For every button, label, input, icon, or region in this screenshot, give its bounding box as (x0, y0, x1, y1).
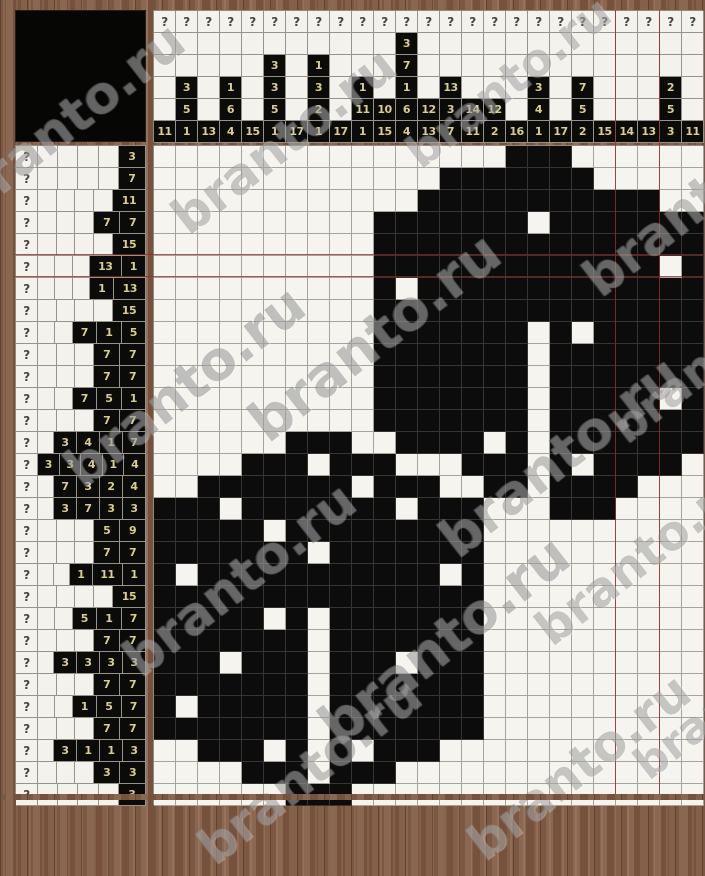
grid-cell[interactable] (638, 674, 660, 696)
grid-cell[interactable] (506, 718, 528, 740)
grid-cell[interactable] (330, 674, 352, 696)
grid-cell[interactable] (264, 586, 286, 608)
grid-cell[interactable] (462, 168, 484, 190)
grid-cell[interactable] (308, 300, 330, 322)
grid-cell[interactable] (352, 300, 374, 322)
grid-cell[interactable] (638, 630, 660, 652)
grid-cell[interactable] (220, 652, 242, 674)
grid-cell[interactable] (594, 146, 616, 168)
grid-cell[interactable] (440, 212, 462, 234)
grid-cell[interactable] (506, 520, 528, 542)
grid-cell[interactable] (462, 674, 484, 696)
grid-cell[interactable] (572, 476, 594, 498)
grid-cell[interactable] (418, 696, 440, 718)
grid-cell[interactable] (440, 256, 462, 278)
grid-cell[interactable] (308, 146, 330, 168)
grid-cell[interactable] (682, 454, 704, 476)
grid-cell[interactable] (572, 630, 594, 652)
grid-cell[interactable] (286, 652, 308, 674)
grid-cell[interactable] (528, 630, 550, 652)
grid-cell[interactable] (484, 278, 506, 300)
grid-cell[interactable] (682, 674, 704, 696)
grid-cell[interactable] (220, 366, 242, 388)
grid-cell[interactable] (220, 454, 242, 476)
grid-cell[interactable] (484, 718, 506, 740)
grid-cell[interactable] (220, 762, 242, 784)
grid-cell[interactable] (660, 168, 682, 190)
grid-cell[interactable] (616, 520, 638, 542)
grid-cell[interactable] (550, 696, 572, 718)
grid-cell[interactable] (176, 344, 198, 366)
grid-cell[interactable] (242, 520, 264, 542)
grid-cell[interactable] (550, 212, 572, 234)
grid-cell[interactable] (660, 718, 682, 740)
grid-cell[interactable] (330, 190, 352, 212)
grid-cell[interactable] (638, 190, 660, 212)
grid-cell[interactable] (330, 234, 352, 256)
grid-cell[interactable] (374, 564, 396, 586)
grid-cell[interactable] (330, 146, 352, 168)
grid-cell[interactable] (374, 762, 396, 784)
grid-cell[interactable] (506, 366, 528, 388)
grid-cell[interactable] (154, 278, 176, 300)
grid-cell[interactable] (484, 454, 506, 476)
grid-cell[interactable] (594, 212, 616, 234)
grid-cell[interactable] (264, 476, 286, 498)
grid-cell[interactable] (220, 234, 242, 256)
grid-cell[interactable] (264, 190, 286, 212)
grid-cell[interactable] (396, 454, 418, 476)
grid-cell[interactable] (374, 696, 396, 718)
grid-cell[interactable] (198, 564, 220, 586)
grid-cell[interactable] (462, 278, 484, 300)
grid-cell[interactable] (374, 234, 396, 256)
grid-cell[interactable] (374, 476, 396, 498)
grid-cell[interactable] (176, 322, 198, 344)
grid-cell[interactable] (264, 564, 286, 586)
grid-cell[interactable] (462, 498, 484, 520)
grid-cell[interactable] (154, 630, 176, 652)
grid-cell[interactable] (484, 168, 506, 190)
grid-cell[interactable] (418, 366, 440, 388)
grid-cell[interactable] (660, 542, 682, 564)
grid-cell[interactable] (176, 234, 198, 256)
grid-cell[interactable] (594, 454, 616, 476)
grid-cell[interactable] (484, 190, 506, 212)
grid-cell[interactable] (220, 344, 242, 366)
grid-cell[interactable] (440, 410, 462, 432)
grid-cell[interactable] (154, 608, 176, 630)
grid-cell[interactable] (660, 498, 682, 520)
grid-cell[interactable] (198, 674, 220, 696)
grid-cell[interactable] (330, 256, 352, 278)
grid-cell[interactable] (550, 300, 572, 322)
grid-cell[interactable] (660, 278, 682, 300)
grid-cell[interactable] (660, 696, 682, 718)
grid-cell[interactable] (374, 740, 396, 762)
grid-cell[interactable] (462, 454, 484, 476)
grid-cell[interactable] (242, 564, 264, 586)
grid-cell[interactable] (682, 256, 704, 278)
grid-cell[interactable] (594, 542, 616, 564)
grid-cell[interactable] (154, 762, 176, 784)
grid-cell[interactable] (264, 674, 286, 696)
grid-cell[interactable] (242, 388, 264, 410)
grid-cell[interactable] (176, 542, 198, 564)
grid-cell[interactable] (396, 322, 418, 344)
grid-cell[interactable] (638, 432, 660, 454)
grid-cell[interactable] (352, 630, 374, 652)
grid-cell[interactable] (220, 432, 242, 454)
grid-cell[interactable] (528, 652, 550, 674)
grid-cell[interactable] (572, 674, 594, 696)
grid-cell[interactable] (462, 630, 484, 652)
grid-cell[interactable] (462, 476, 484, 498)
grid-cell[interactable] (616, 476, 638, 498)
grid-cell[interactable] (506, 146, 528, 168)
grid-cell[interactable] (616, 322, 638, 344)
grid-cell[interactable] (264, 696, 286, 718)
grid-cell[interactable] (176, 564, 198, 586)
grid-cell[interactable] (660, 476, 682, 498)
grid-cell[interactable] (220, 212, 242, 234)
grid-cell[interactable] (220, 410, 242, 432)
grid-cell[interactable] (396, 520, 418, 542)
grid-cell[interactable] (242, 300, 264, 322)
grid-cell[interactable] (462, 234, 484, 256)
grid-cell[interactable] (286, 300, 308, 322)
grid-cell[interactable] (506, 190, 528, 212)
grid-cell[interactable] (396, 146, 418, 168)
grid-cell[interactable] (418, 564, 440, 586)
grid-cell[interactable] (660, 366, 682, 388)
grid-cell[interactable] (264, 718, 286, 740)
grid-cell[interactable] (242, 212, 264, 234)
grid-cell[interactable] (682, 366, 704, 388)
grid-cell[interactable] (242, 256, 264, 278)
grid-cell[interactable] (550, 740, 572, 762)
grid-cell[interactable] (440, 564, 462, 586)
grid-cell[interactable] (528, 388, 550, 410)
grid-cell[interactable] (572, 300, 594, 322)
grid-cell[interactable] (572, 256, 594, 278)
grid-cell[interactable] (198, 388, 220, 410)
grid-cell[interactable] (682, 586, 704, 608)
grid-cell[interactable] (682, 322, 704, 344)
grid-cell[interactable] (682, 762, 704, 784)
grid-cell[interactable] (616, 410, 638, 432)
grid-cell[interactable] (330, 608, 352, 630)
grid-cell[interactable] (286, 388, 308, 410)
grid-cell[interactable] (352, 520, 374, 542)
grid-cell[interactable] (374, 278, 396, 300)
grid-cell[interactable] (374, 388, 396, 410)
grid-cell[interactable] (462, 740, 484, 762)
grid-cell[interactable] (528, 586, 550, 608)
grid-cell[interactable] (462, 322, 484, 344)
grid-cell[interactable] (198, 168, 220, 190)
grid-cell[interactable] (616, 608, 638, 630)
grid-cell[interactable] (638, 520, 660, 542)
grid-cell[interactable] (352, 322, 374, 344)
grid-cell[interactable] (396, 476, 418, 498)
grid-cell[interactable] (396, 762, 418, 784)
grid-cell[interactable] (616, 542, 638, 564)
grid-cell[interactable] (506, 256, 528, 278)
grid-cell[interactable] (352, 608, 374, 630)
grid-cell[interactable] (616, 234, 638, 256)
grid-cell[interactable] (594, 630, 616, 652)
grid-cell[interactable] (396, 740, 418, 762)
grid-cell[interactable] (418, 432, 440, 454)
grid-cell[interactable] (330, 762, 352, 784)
grid-cell[interactable] (572, 718, 594, 740)
grid-cell[interactable] (616, 718, 638, 740)
grid-cell[interactable] (572, 498, 594, 520)
grid-cell[interactable] (484, 366, 506, 388)
grid-cell[interactable] (616, 564, 638, 586)
grid-cell[interactable] (440, 652, 462, 674)
grid-cell[interactable] (572, 410, 594, 432)
grid-cell[interactable] (484, 300, 506, 322)
grid-cell[interactable] (528, 300, 550, 322)
grid-cell[interactable] (330, 586, 352, 608)
grid-cell[interactable] (264, 542, 286, 564)
grid-cell[interactable] (682, 542, 704, 564)
grid-cell[interactable] (594, 520, 616, 542)
grid-cell[interactable] (528, 718, 550, 740)
grid-cell[interactable] (308, 762, 330, 784)
grid-cell[interactable] (594, 498, 616, 520)
grid-cell[interactable] (154, 146, 176, 168)
grid-cell[interactable] (352, 652, 374, 674)
grid-cell[interactable] (682, 718, 704, 740)
grid-cell[interactable] (638, 740, 660, 762)
grid-cell[interactable] (484, 212, 506, 234)
grid-cell[interactable] (484, 586, 506, 608)
grid-cell[interactable] (638, 718, 660, 740)
grid-cell[interactable] (594, 674, 616, 696)
grid-cell[interactable] (506, 278, 528, 300)
grid-cell[interactable] (374, 542, 396, 564)
grid-cell[interactable] (286, 410, 308, 432)
grid-cell[interactable] (242, 542, 264, 564)
grid-cell[interactable] (572, 652, 594, 674)
grid-cell[interactable] (660, 212, 682, 234)
grid-cell[interactable] (198, 146, 220, 168)
grid-cell[interactable] (308, 652, 330, 674)
grid-cell[interactable] (528, 454, 550, 476)
grid-cell[interactable] (198, 322, 220, 344)
grid-cell[interactable] (550, 718, 572, 740)
grid-cell[interactable] (506, 674, 528, 696)
grid-cell[interactable] (374, 498, 396, 520)
grid-cell[interactable] (242, 740, 264, 762)
grid-cell[interactable] (506, 542, 528, 564)
grid-cell[interactable] (264, 630, 286, 652)
grid-cell[interactable] (682, 740, 704, 762)
grid-cell[interactable] (572, 168, 594, 190)
grid-cell[interactable] (616, 652, 638, 674)
grid-cell[interactable] (550, 454, 572, 476)
grid-cell[interactable] (660, 388, 682, 410)
grid-cell[interactable] (440, 762, 462, 784)
grid-cell[interactable] (330, 168, 352, 190)
grid-cell[interactable] (308, 344, 330, 366)
grid-cell[interactable] (330, 564, 352, 586)
grid-cell[interactable] (374, 652, 396, 674)
grid-cell[interactable] (308, 410, 330, 432)
grid-cell[interactable] (330, 652, 352, 674)
grid-cell[interactable] (242, 322, 264, 344)
grid-cell[interactable] (396, 542, 418, 564)
grid-cell[interactable] (594, 696, 616, 718)
grid-cell[interactable] (528, 168, 550, 190)
grid-cell[interactable] (220, 564, 242, 586)
grid-cell[interactable] (330, 388, 352, 410)
grid-cell[interactable] (198, 542, 220, 564)
grid-cell[interactable] (506, 168, 528, 190)
grid-cell[interactable] (176, 740, 198, 762)
grid-cell[interactable] (572, 190, 594, 212)
grid-cell[interactable] (242, 366, 264, 388)
grid-cell[interactable] (572, 542, 594, 564)
grid-cell[interactable] (264, 652, 286, 674)
grid-cell[interactable] (352, 498, 374, 520)
grid-cell[interactable] (462, 212, 484, 234)
grid-cell[interactable] (220, 300, 242, 322)
grid-cell[interactable] (286, 762, 308, 784)
grid-cell[interactable] (176, 608, 198, 630)
grid-cell[interactable] (594, 256, 616, 278)
grid-cell[interactable] (308, 740, 330, 762)
grid-cell[interactable] (572, 388, 594, 410)
grid-cell[interactable] (330, 542, 352, 564)
grid-cell[interactable] (594, 476, 616, 498)
grid-cell[interactable] (462, 564, 484, 586)
grid-cell[interactable] (550, 762, 572, 784)
grid-cell[interactable] (242, 344, 264, 366)
grid-cell[interactable] (374, 520, 396, 542)
grid-cell[interactable] (220, 498, 242, 520)
grid-cell[interactable] (308, 256, 330, 278)
grid-cell[interactable] (506, 476, 528, 498)
grid-cell[interactable] (198, 344, 220, 366)
grid-cell[interactable] (308, 674, 330, 696)
grid-cell[interactable] (616, 278, 638, 300)
grid-cell[interactable] (440, 718, 462, 740)
grid-cell[interactable] (308, 234, 330, 256)
grid-cell[interactable] (572, 520, 594, 542)
grid-cell[interactable] (616, 146, 638, 168)
grid-cell[interactable] (264, 146, 286, 168)
grid-cell[interactable] (440, 234, 462, 256)
grid-cell[interactable] (242, 234, 264, 256)
grid-cell[interactable] (154, 652, 176, 674)
grid-cell[interactable] (198, 520, 220, 542)
grid-cell[interactable] (572, 146, 594, 168)
grid-cell[interactable] (484, 388, 506, 410)
grid-cell[interactable] (176, 278, 198, 300)
grid-cell[interactable] (286, 432, 308, 454)
grid-cell[interactable] (528, 674, 550, 696)
grid-cell[interactable] (242, 454, 264, 476)
grid-cell[interactable] (352, 366, 374, 388)
grid-cell[interactable] (198, 586, 220, 608)
grid-cell[interactable] (506, 410, 528, 432)
grid-cell[interactable] (638, 168, 660, 190)
grid-cell[interactable] (374, 168, 396, 190)
grid-cell[interactable] (308, 696, 330, 718)
grid-cell[interactable] (286, 234, 308, 256)
grid-cell[interactable] (418, 476, 440, 498)
grid-cell[interactable] (418, 190, 440, 212)
grid-cell[interactable] (264, 256, 286, 278)
grid-cell[interactable] (154, 388, 176, 410)
grid-cell[interactable] (154, 674, 176, 696)
grid-cell[interactable] (550, 344, 572, 366)
grid-cell[interactable] (352, 190, 374, 212)
grid-cell[interactable] (220, 256, 242, 278)
grid-cell[interactable] (638, 234, 660, 256)
grid-cell[interactable] (352, 564, 374, 586)
grid-cell[interactable] (396, 718, 418, 740)
grid-cell[interactable] (682, 498, 704, 520)
grid-cell[interactable] (660, 586, 682, 608)
grid-cell[interactable] (154, 542, 176, 564)
grid-cell[interactable] (154, 718, 176, 740)
grid-cell[interactable] (352, 168, 374, 190)
grid-cell[interactable] (506, 630, 528, 652)
grid-cell[interactable] (550, 168, 572, 190)
grid-cell[interactable] (572, 366, 594, 388)
grid-cell[interactable] (352, 454, 374, 476)
grid-cell[interactable] (198, 630, 220, 652)
grid-cell[interactable] (308, 168, 330, 190)
grid-cell[interactable] (264, 344, 286, 366)
grid-cell[interactable] (220, 740, 242, 762)
grid-cell[interactable] (594, 410, 616, 432)
grid-cell[interactable] (352, 388, 374, 410)
grid-cell[interactable] (682, 300, 704, 322)
grid-cell[interactable] (220, 696, 242, 718)
grid-cell[interactable] (528, 234, 550, 256)
grid-cell[interactable] (308, 432, 330, 454)
grid-cell[interactable] (396, 432, 418, 454)
grid-cell[interactable] (154, 234, 176, 256)
grid-cell[interactable] (550, 410, 572, 432)
grid-cell[interactable] (528, 190, 550, 212)
grid-cell[interactable] (660, 410, 682, 432)
grid-cell[interactable] (506, 498, 528, 520)
grid-cell[interactable] (330, 212, 352, 234)
grid-cell[interactable] (396, 344, 418, 366)
grid-cell[interactable] (484, 256, 506, 278)
grid-cell[interactable] (550, 366, 572, 388)
grid-cell[interactable] (418, 718, 440, 740)
grid-cell[interactable] (418, 278, 440, 300)
grid-cell[interactable] (484, 608, 506, 630)
grid-cell[interactable] (220, 146, 242, 168)
grid-cell[interactable] (550, 278, 572, 300)
grid-cell[interactable] (638, 278, 660, 300)
grid-cell[interactable] (264, 278, 286, 300)
grid-cell[interactable] (220, 322, 242, 344)
grid-cell[interactable] (220, 520, 242, 542)
grid-cell[interactable] (572, 608, 594, 630)
grid-cell[interactable] (594, 652, 616, 674)
grid-cell[interactable] (484, 762, 506, 784)
